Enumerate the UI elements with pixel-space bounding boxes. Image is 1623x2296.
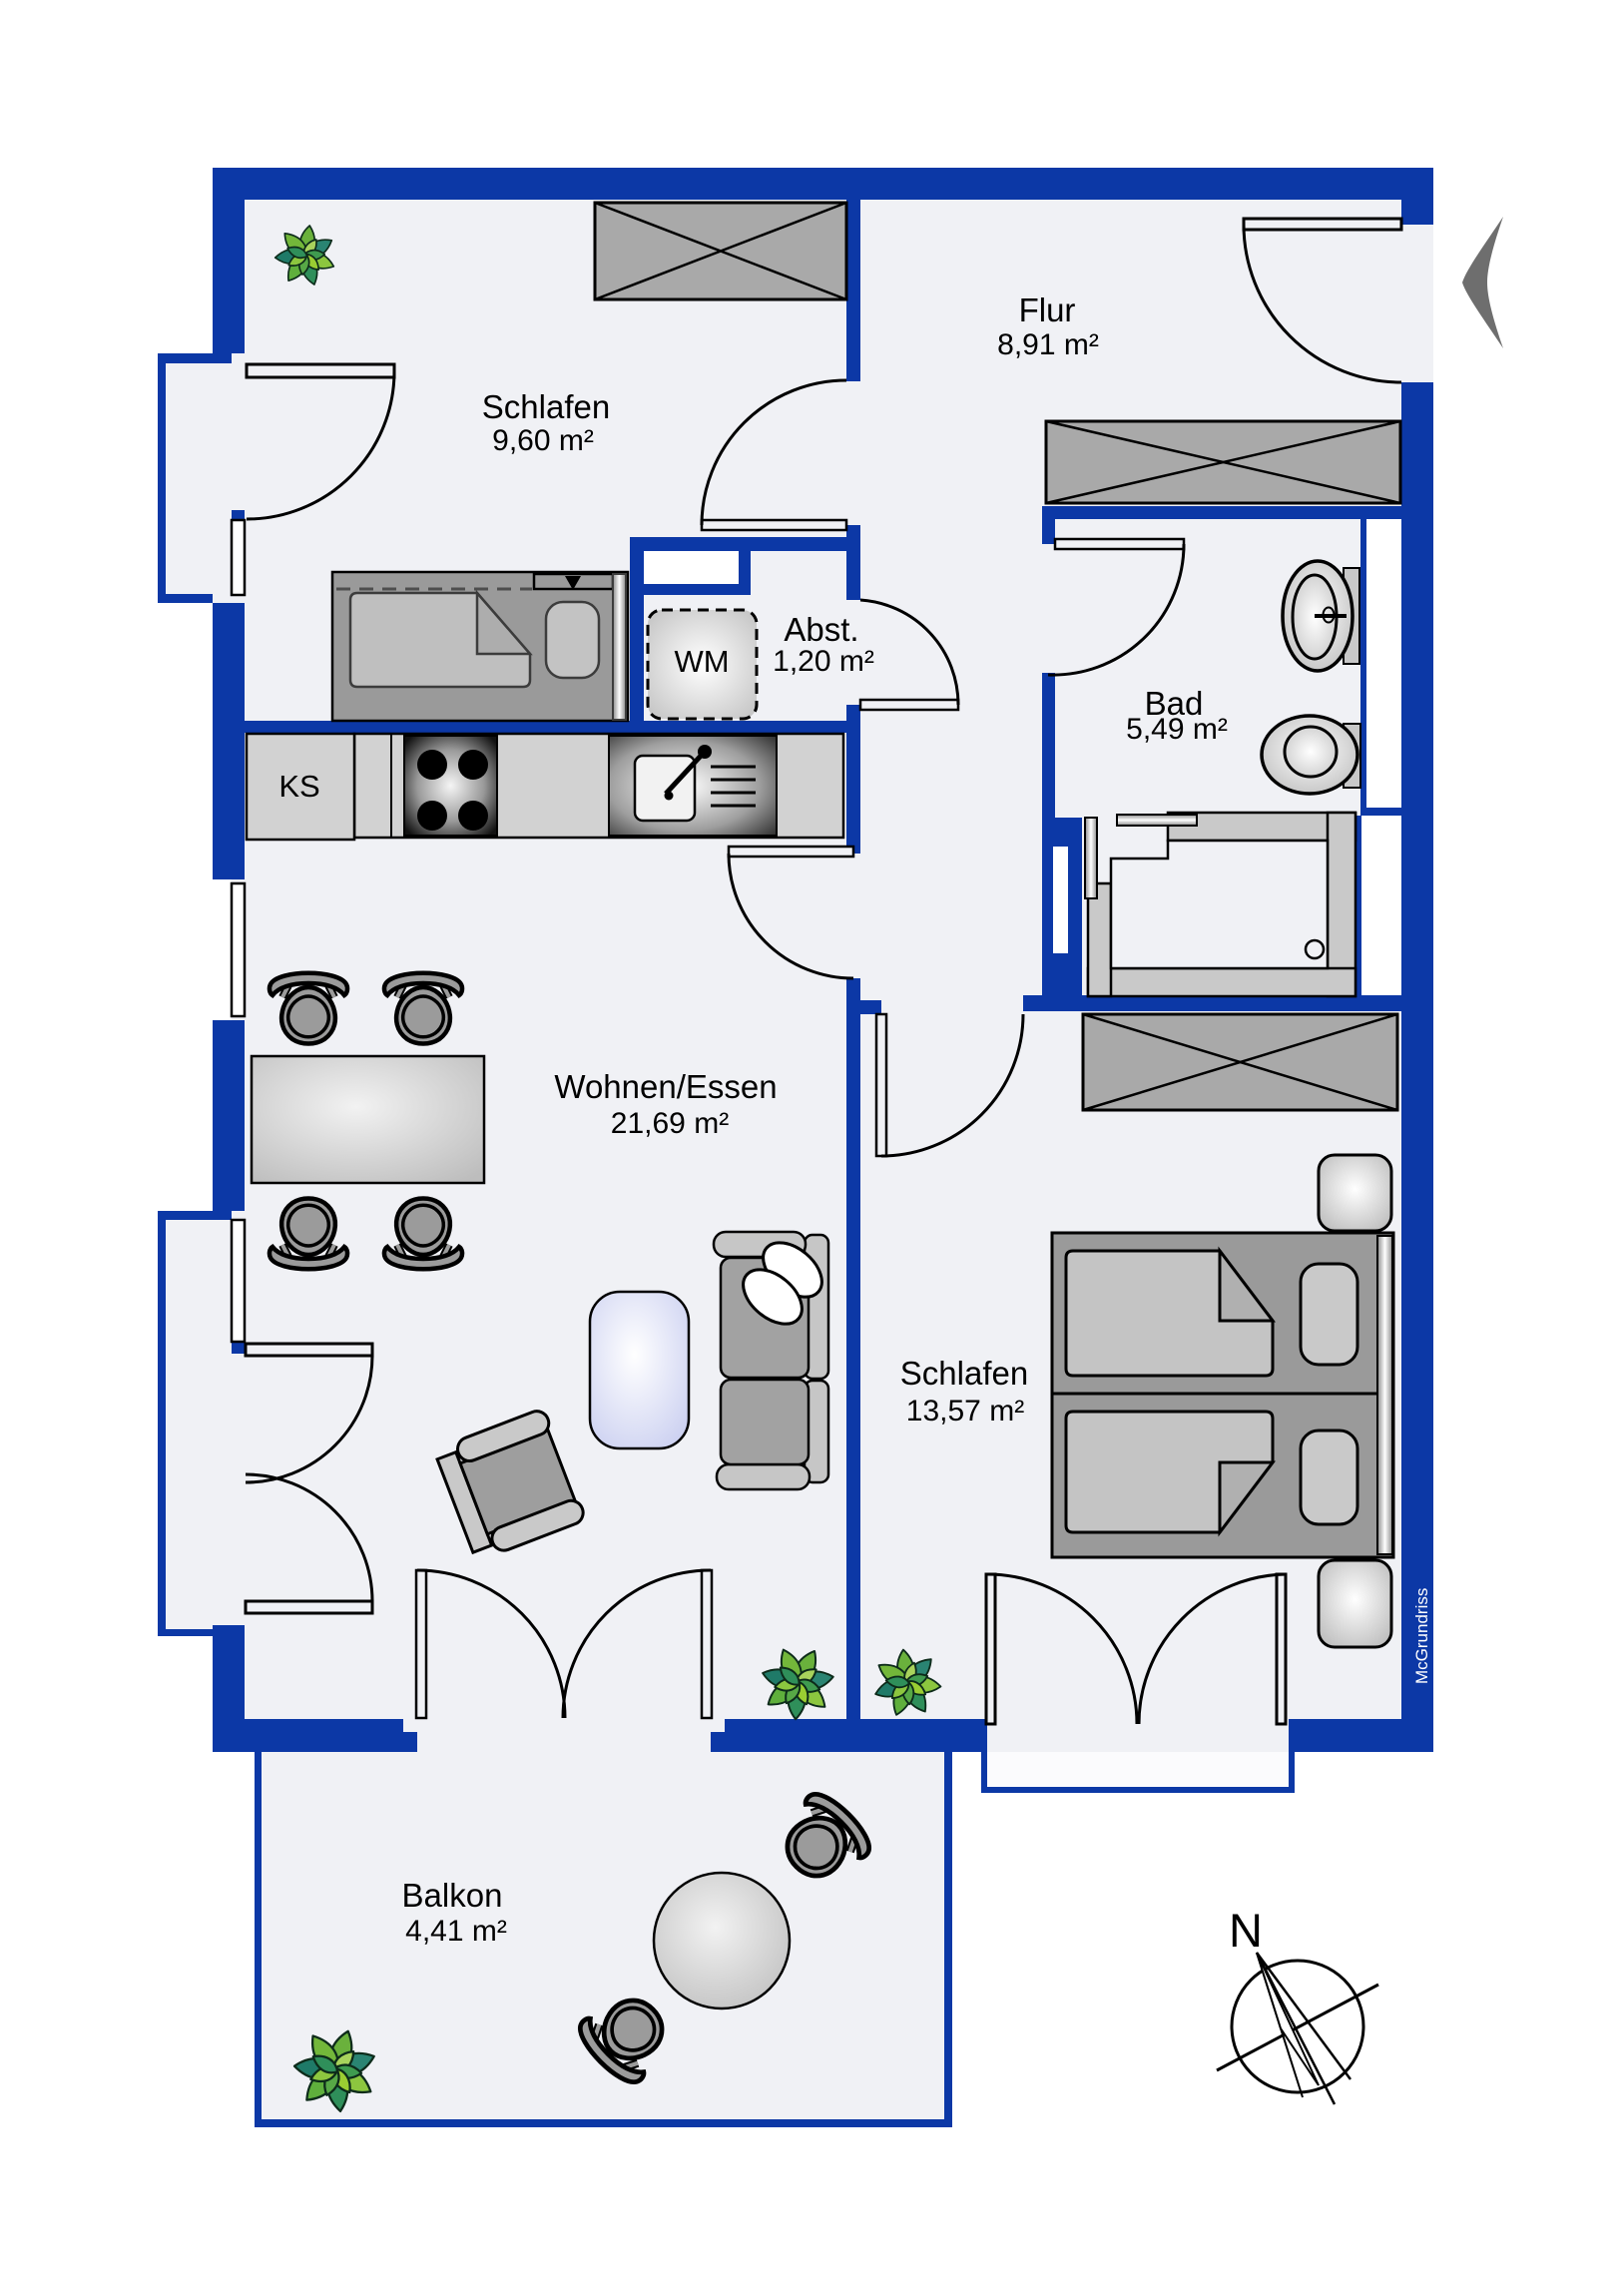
svg-text:21,69 m²: 21,69 m² (611, 1107, 729, 1140)
svg-text:McGrundriss: McGrundriss (1412, 1588, 1431, 1684)
svg-text:8,91 m²: 8,91 m² (997, 328, 1099, 361)
svg-text:Schlafen: Schlafen (900, 1355, 1028, 1392)
svg-text:9,60 m²: 9,60 m² (492, 424, 594, 457)
svg-text:Balkon: Balkon (402, 1877, 503, 1914)
svg-text:4,41 m²: 4,41 m² (405, 1915, 507, 1948)
svg-text:Abst.: Abst. (784, 611, 858, 648)
svg-text:KS: KS (278, 769, 319, 804)
svg-text:N: N (1229, 1904, 1263, 1957)
svg-text:WM: WM (674, 644, 729, 679)
svg-text:Wohnen/Essen: Wohnen/Essen (554, 1068, 777, 1105)
svg-text:Flur: Flur (1019, 291, 1076, 328)
svg-text:Schlafen: Schlafen (482, 388, 610, 425)
svg-text:13,57 m²: 13,57 m² (906, 1395, 1024, 1428)
svg-text:5,49 m²: 5,49 m² (1126, 713, 1228, 746)
svg-text:1,20 m²: 1,20 m² (773, 645, 874, 678)
